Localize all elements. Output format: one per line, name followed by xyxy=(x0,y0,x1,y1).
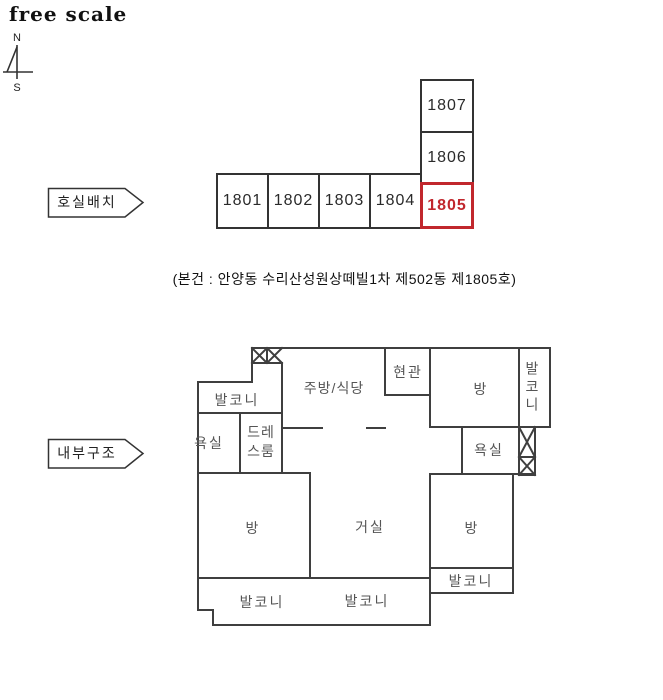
room-living: 거실 xyxy=(355,517,385,537)
room-top-right: 방 xyxy=(474,379,489,399)
room-balcony-mid-right: 발코니 xyxy=(449,571,494,591)
room-balcony-right: 발코니 xyxy=(525,361,539,415)
floor-plan-drawing xyxy=(0,0,663,700)
room-balcony-top-left: 발코니 xyxy=(215,390,260,410)
room-balcony-bottom-left: 발코니 xyxy=(240,592,285,612)
room-entrance: 현관 xyxy=(393,362,423,382)
room-balcony-bottom-middle: 발코니 xyxy=(345,591,390,611)
room-bathroom-left: 욕실 xyxy=(194,433,224,453)
room-bottom-right: 방 xyxy=(465,518,480,538)
room-left: 방 xyxy=(246,518,261,538)
duct-x-box-top xyxy=(252,348,282,363)
duct-x-box-right xyxy=(519,427,535,475)
room-kitchen-dining: 주방/식당 xyxy=(304,378,364,398)
room-dress-room: 드레스룸 xyxy=(244,423,278,461)
room-bathroom-right: 욕실 xyxy=(474,440,504,460)
